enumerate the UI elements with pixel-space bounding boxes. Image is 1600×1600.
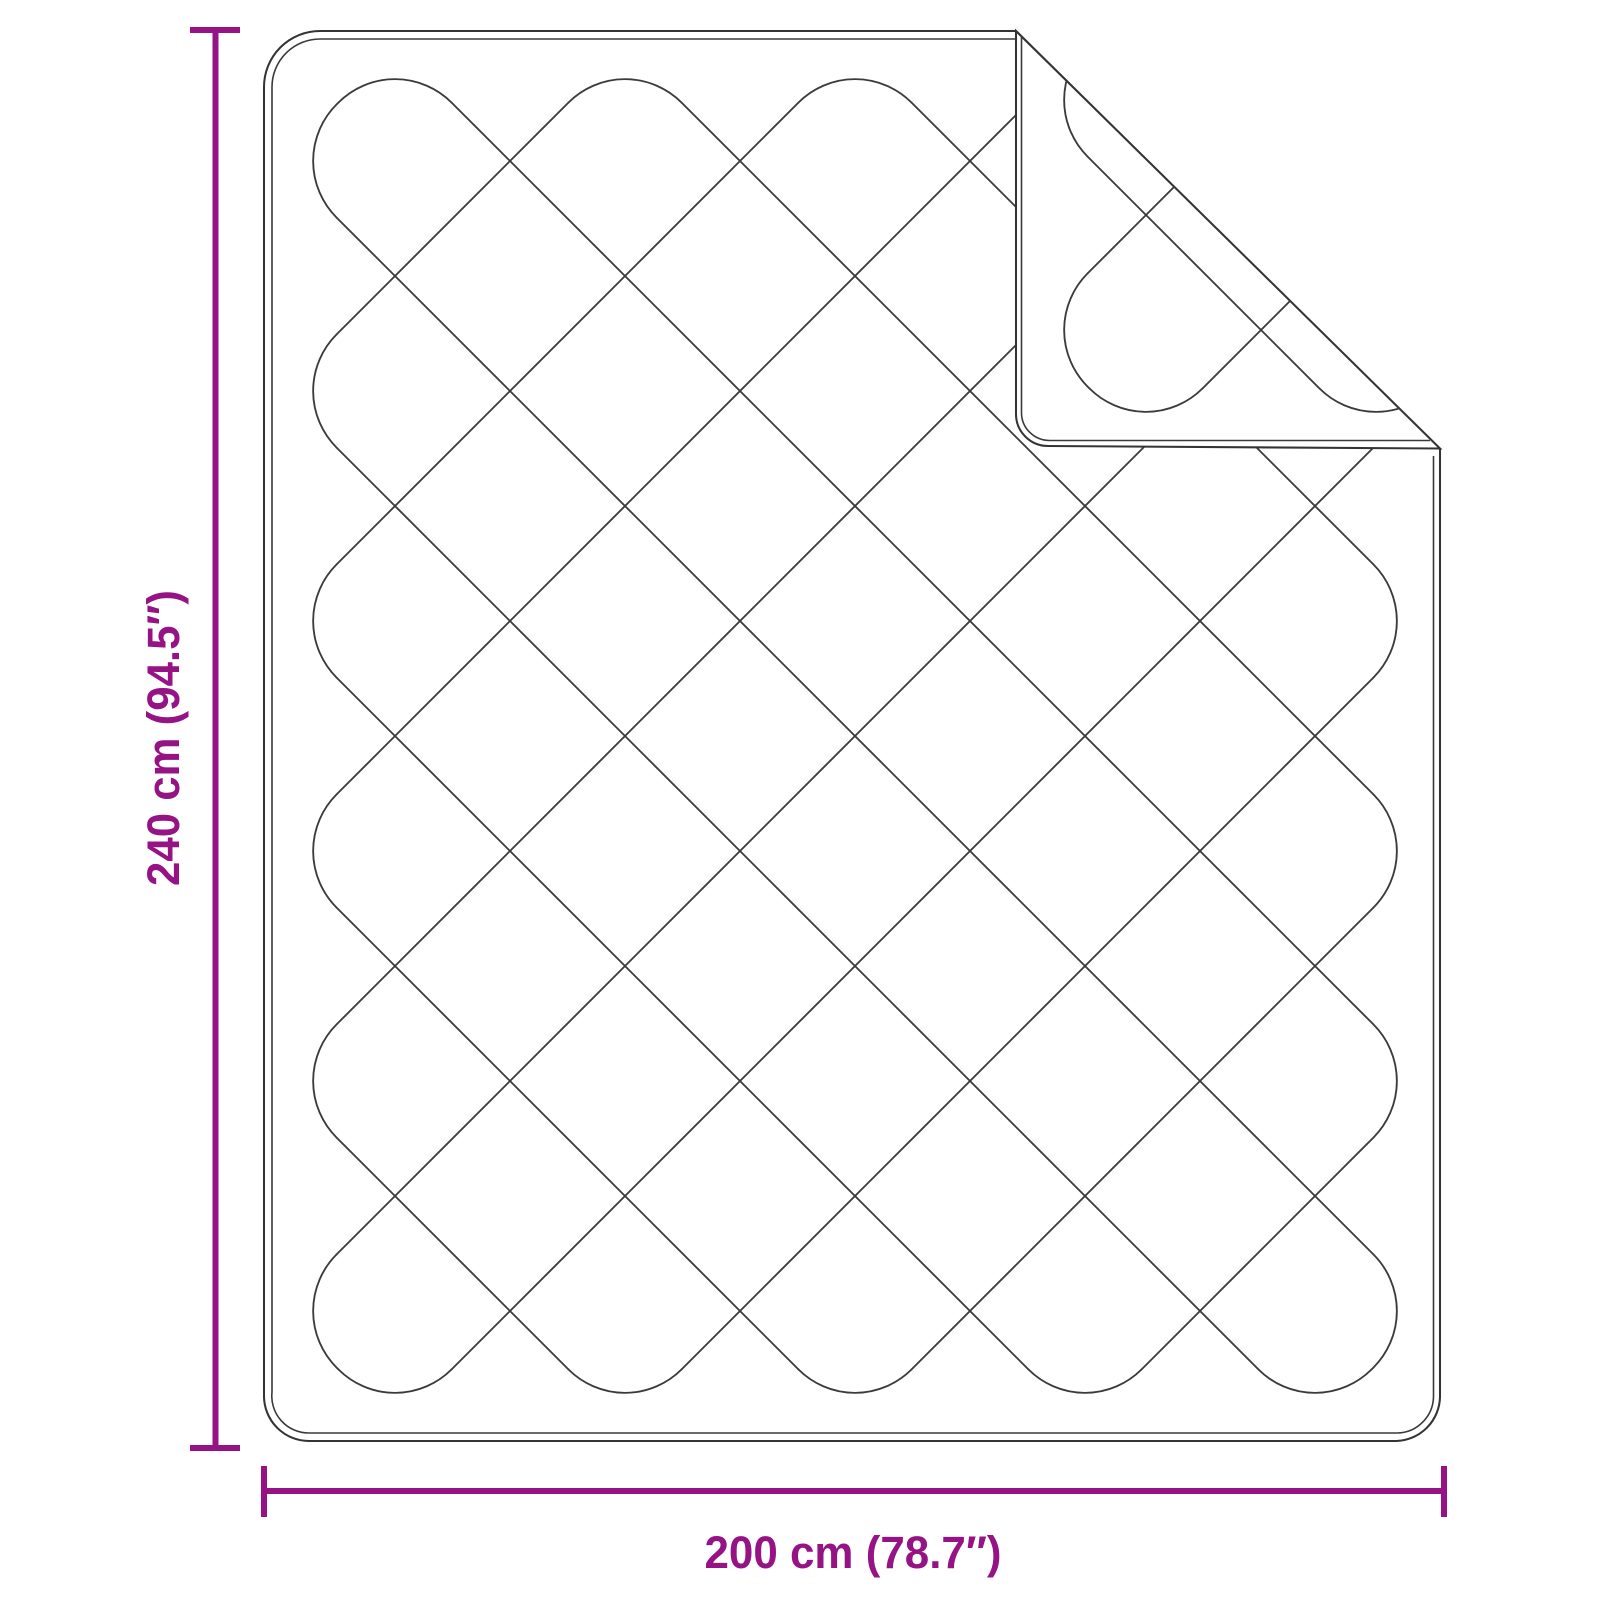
svg-text:200 cm (78.7″): 200 cm (78.7″) <box>705 1527 1002 1578</box>
svg-text:240 cm (94.5″): 240 cm (94.5″) <box>138 590 189 886</box>
